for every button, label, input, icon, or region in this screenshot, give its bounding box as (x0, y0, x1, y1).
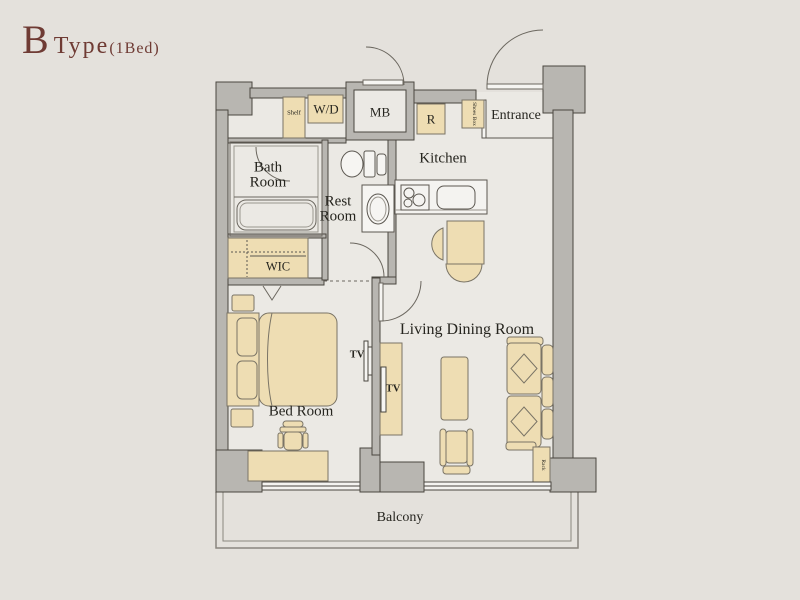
dining-table (447, 221, 484, 264)
mb-door-arc (366, 47, 404, 85)
label-washer-dryer: W/D (313, 102, 338, 115)
bed-mattress (259, 313, 337, 406)
plan-type-sub: (1Bed) (109, 40, 159, 58)
kitchen-counter (395, 180, 487, 214)
label-refrigerator: R (427, 112, 436, 125)
entrance-door-arc (487, 30, 543, 86)
desk (248, 451, 328, 481)
entrance-door-leaf (487, 84, 543, 89)
pillar-bottom-right (550, 458, 596, 492)
wall-left (216, 110, 228, 455)
desk-chair (283, 421, 303, 427)
label-rack: Rack (539, 459, 545, 470)
living-door-leaf (379, 283, 383, 321)
label-rest-room: Rest Room (320, 195, 357, 226)
plan-type-word: Type (54, 33, 110, 60)
label-entrance: Entrance (491, 109, 541, 123)
label-living-dining-room: Living Dining Room (400, 322, 534, 338)
nightstand-bottom (231, 409, 253, 427)
toilet (341, 151, 386, 177)
pillow-1 (237, 318, 257, 356)
mb-door-leaf (363, 80, 403, 85)
plan-title: B Type (1Bed) (22, 16, 160, 63)
label-shoes-box: Shoes Box (470, 102, 476, 126)
label-wic: WIC (266, 261, 290, 274)
nightstand-top (232, 295, 254, 311)
label-kitchen: Kitchen (419, 151, 466, 166)
pillow-2 (237, 361, 257, 399)
floor-plan-page: B Type (1Bed) Bath Room Rest Room Kitche… (0, 0, 800, 600)
label-bath-room: Bath Room (250, 161, 287, 192)
plan-type-letter: B (22, 16, 50, 63)
shelf (283, 97, 305, 138)
armchair (446, 431, 467, 463)
sink (437, 186, 475, 209)
pillar-top-right (543, 66, 585, 113)
label-shelf: Shelf (287, 111, 301, 118)
label-balcony: Balcony (377, 511, 424, 525)
washbasin (362, 185, 394, 232)
label-bed-room: Bed Room (269, 404, 334, 419)
label-meter-box: MB (370, 105, 390, 118)
coffee-table (441, 357, 468, 420)
wall-hall-south (228, 278, 324, 285)
wall-bottom-mid-b (380, 462, 424, 492)
label-tv-living: TV (386, 385, 401, 396)
wall-right (553, 110, 573, 460)
tv-bedroom (364, 341, 368, 381)
label-tv-bedroom: TV (350, 351, 365, 362)
